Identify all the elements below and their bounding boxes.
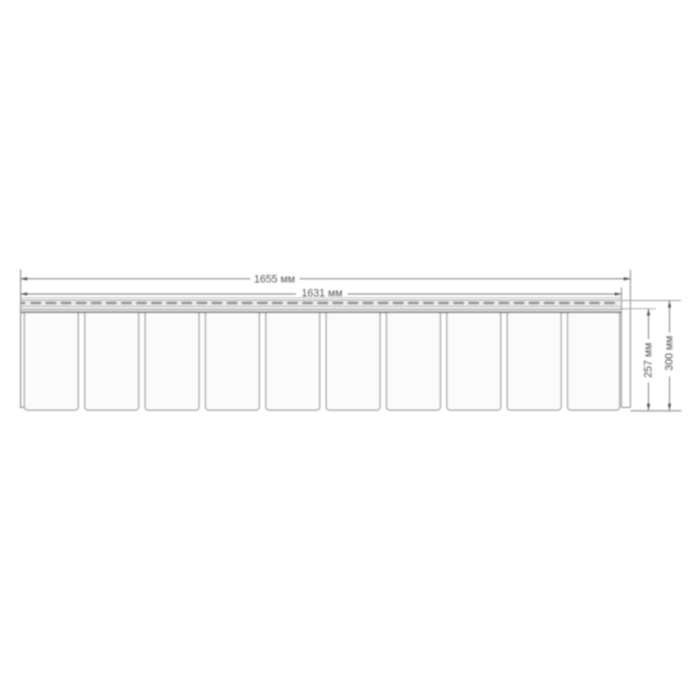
svg-text:300 мм: 300 мм: [663, 336, 675, 371]
svg-text:1655 мм: 1655 мм: [254, 274, 295, 286]
svg-text:257 мм: 257 мм: [642, 343, 654, 378]
